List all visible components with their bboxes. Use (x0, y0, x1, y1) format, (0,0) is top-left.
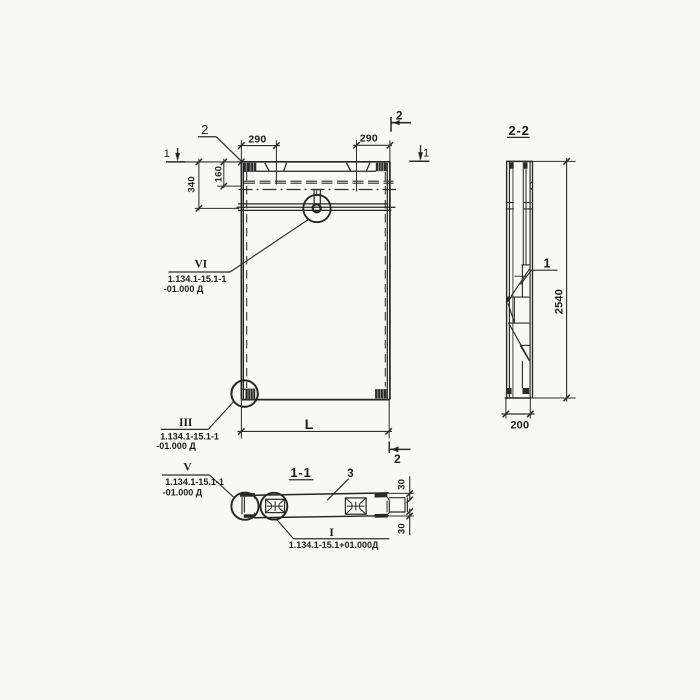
svg-text:160: 160 (214, 166, 225, 182)
svg-text:30: 30 (397, 479, 408, 490)
svg-text:340: 340 (187, 176, 198, 192)
svg-text:-01.000 Д: -01.000 Д (164, 284, 204, 294)
svg-text:VI: VI (195, 259, 208, 271)
svg-text:V: V (183, 462, 192, 474)
svg-text:2: 2 (394, 452, 401, 466)
svg-text:-01.000 Д: -01.000 Д (156, 441, 196, 451)
svg-text:I: I (329, 525, 334, 539)
svg-text:2: 2 (201, 122, 208, 137)
svg-text:-01.000 Д: -01.000 Д (163, 487, 203, 497)
svg-text:1.134.1-15.1-1: 1.134.1-15.1-1 (165, 477, 224, 487)
svg-text:L: L (305, 416, 314, 432)
svg-text:290: 290 (248, 134, 266, 146)
svg-text:1.134.1-15.1-1: 1.134.1-15.1-1 (168, 274, 227, 284)
svg-text:290: 290 (360, 133, 378, 145)
svg-text:1.134.1-15.1+01.000Д: 1.134.1-15.1+01.000Д (289, 540, 379, 550)
svg-text:1-1: 1-1 (290, 465, 311, 480)
svg-text:1: 1 (423, 148, 429, 160)
svg-text:III: III (179, 417, 193, 429)
svg-text:2540: 2540 (554, 289, 566, 314)
svg-text:200: 200 (510, 420, 529, 432)
svg-text:2: 2 (396, 109, 403, 123)
svg-text:2-2: 2-2 (508, 123, 529, 138)
svg-text:30: 30 (397, 523, 408, 534)
svg-text:1: 1 (544, 256, 551, 270)
svg-text:1: 1 (164, 148, 170, 160)
